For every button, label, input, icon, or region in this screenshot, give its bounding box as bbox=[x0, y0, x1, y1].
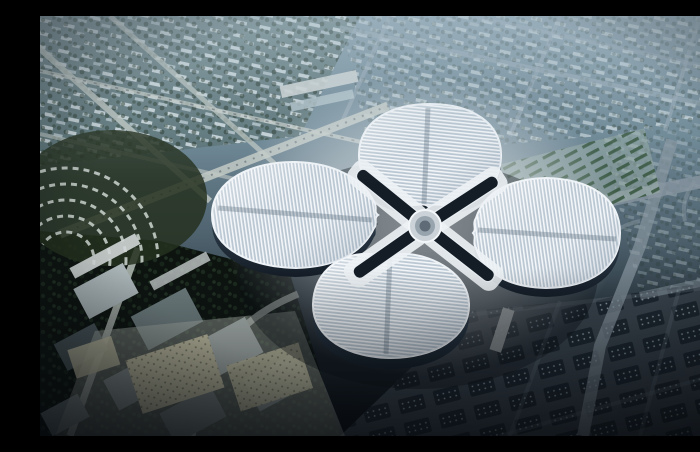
scene-canvas bbox=[40, 16, 700, 436]
vignette bbox=[40, 16, 700, 436]
aerial-rendering bbox=[40, 16, 700, 436]
